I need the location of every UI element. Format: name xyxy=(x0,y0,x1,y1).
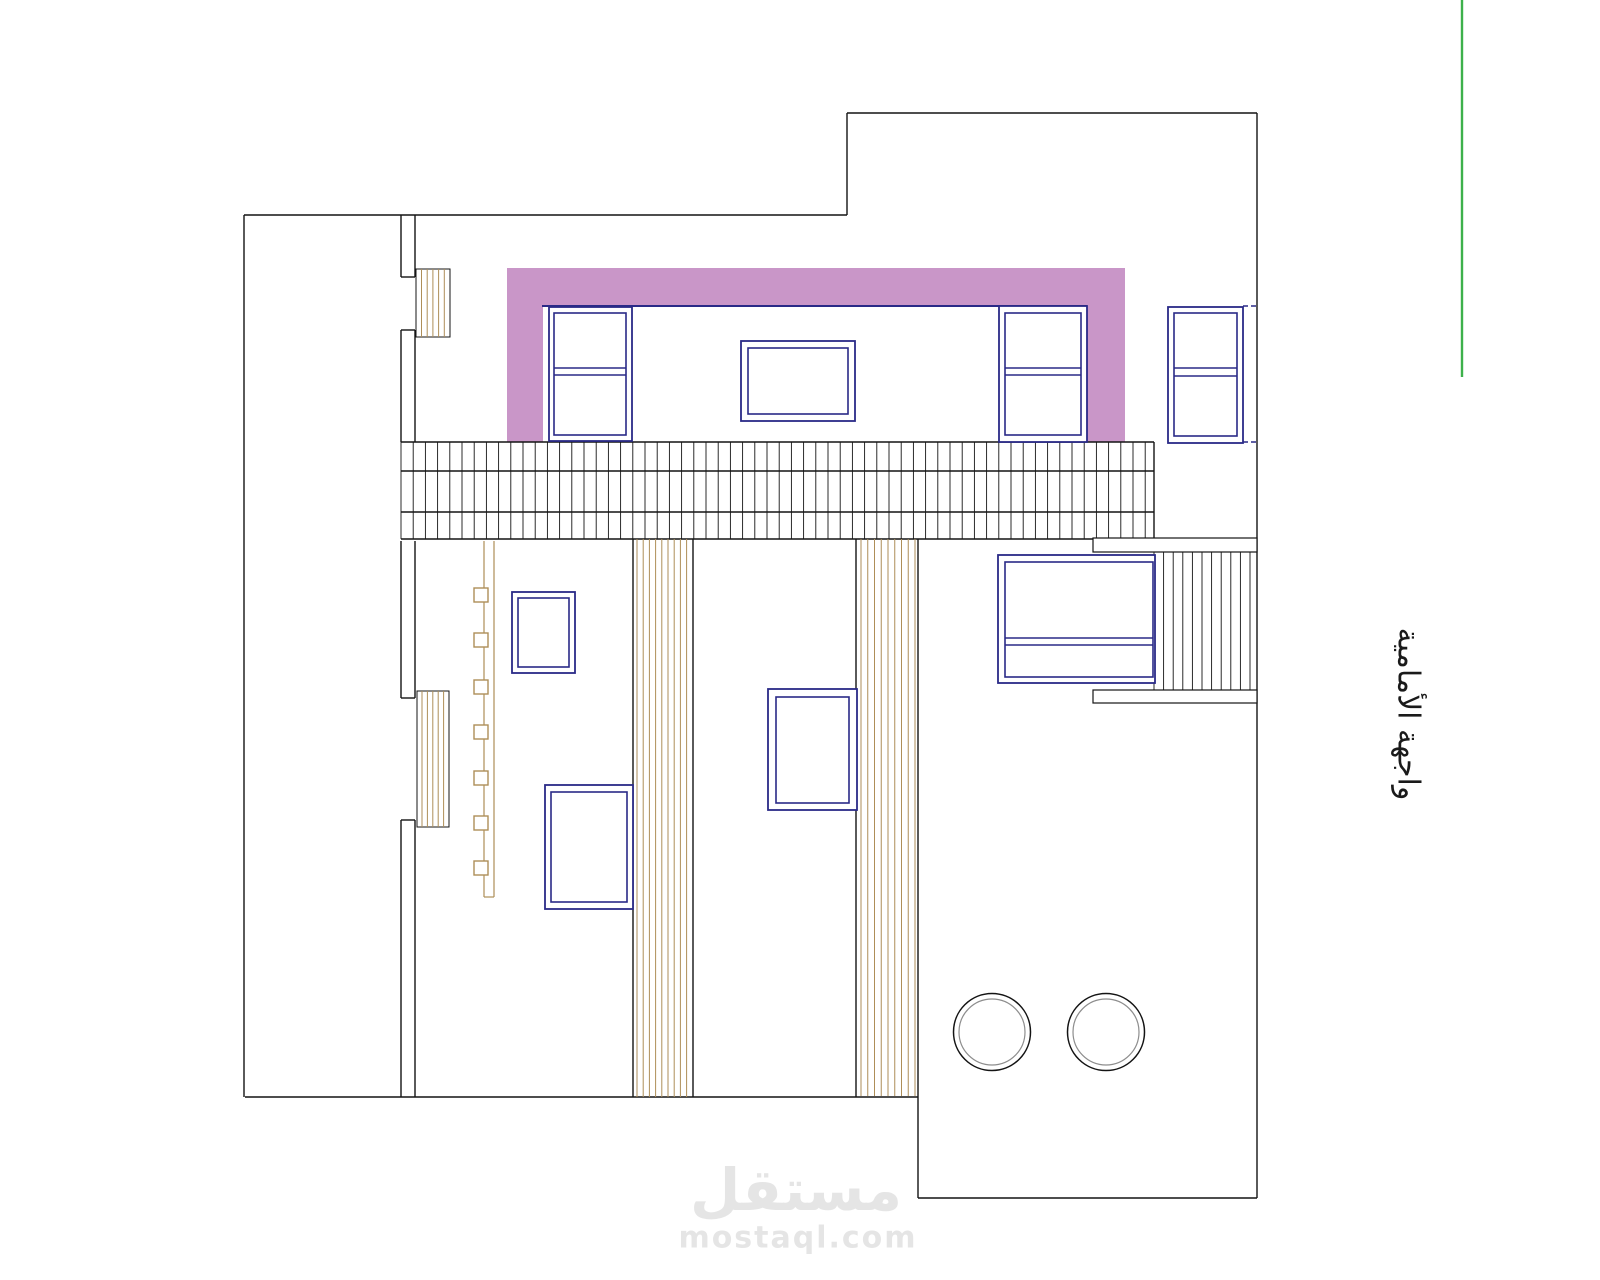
elevation-drawing xyxy=(0,0,1600,1280)
facade-title-label: واجهة الأمامية xyxy=(1391,628,1426,801)
reference-dashes xyxy=(1243,306,1257,442)
drawing-canvas: واجهة الأمامية مستقل mostaql.com xyxy=(0,0,1600,1280)
water-tanks xyxy=(954,994,1145,1071)
watermark-logo: مستقل xyxy=(690,1156,902,1224)
windows xyxy=(512,306,1243,909)
watermark-domain: mostaql.com xyxy=(678,1221,917,1256)
drain-pipe xyxy=(474,541,494,897)
